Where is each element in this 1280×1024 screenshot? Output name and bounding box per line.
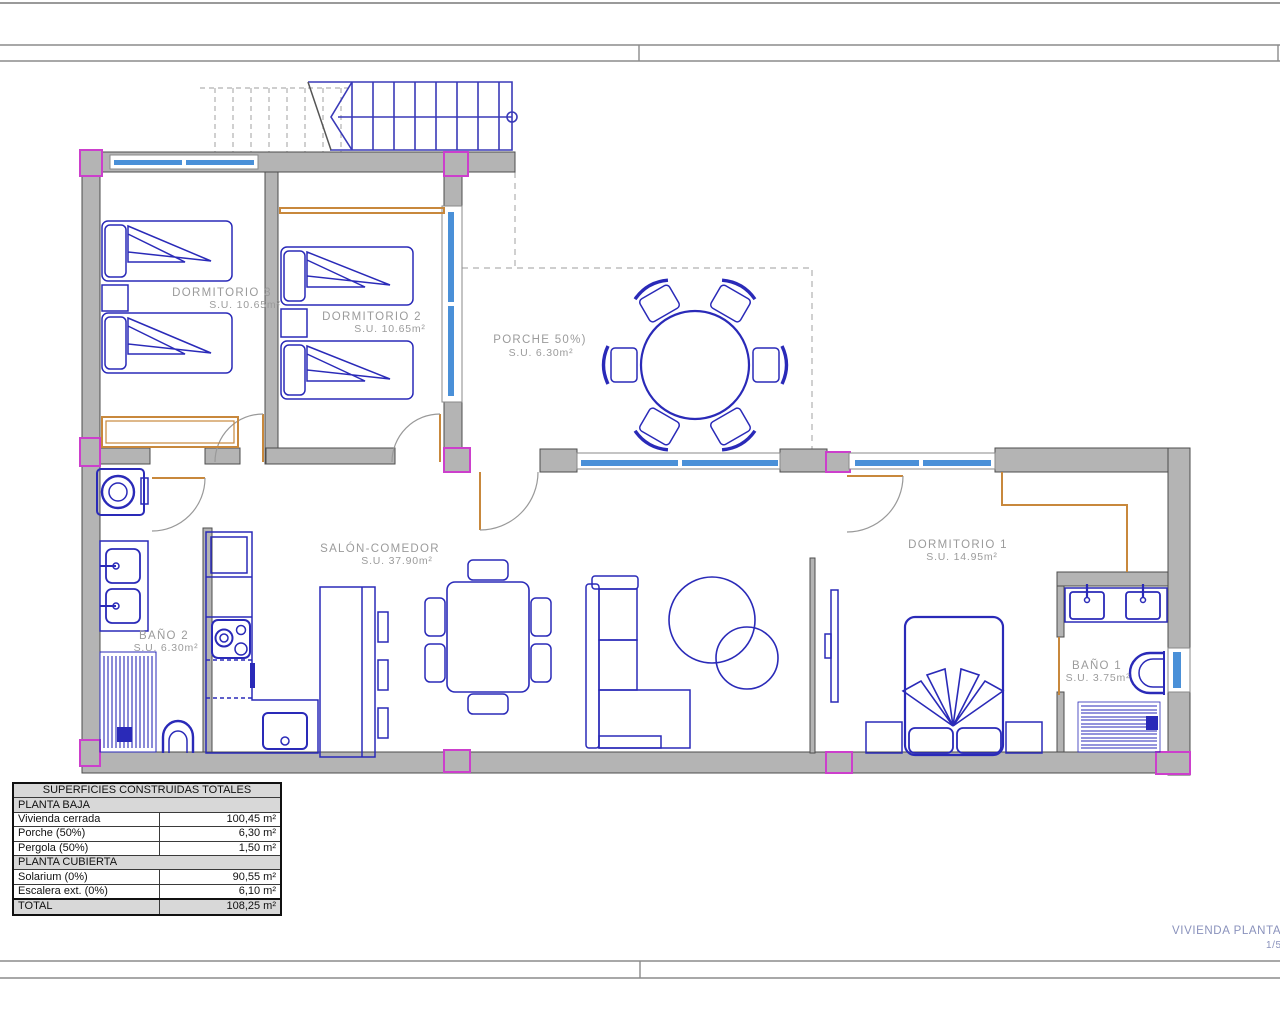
- chair: [425, 598, 445, 636]
- round-pouf: [716, 627, 778, 689]
- room-area-dormitorio2: S.U. 10.65m²: [354, 323, 425, 335]
- kitchen-sink: [263, 713, 307, 749]
- bano2-fixtures: [97, 469, 193, 753]
- room-label-bano2: BAÑO 2: [139, 629, 189, 642]
- window-salon: [577, 453, 780, 469]
- pillow: [105, 317, 126, 369]
- planta-baja-header: PLANTA BAJA: [13, 798, 281, 812]
- round-table: [641, 311, 749, 419]
- room-label-dormitorio1: DORMITORIO 1: [908, 539, 1008, 551]
- row-label: Porche (50%): [13, 827, 159, 841]
- tv-unit: [831, 590, 838, 702]
- room-area-bano2: S.U. 6.30m²: [134, 642, 199, 654]
- table-title: SUPERFICIES CONSTRUIDAS TOTALES: [13, 783, 281, 798]
- pillow: [284, 345, 305, 395]
- bed: [281, 341, 413, 399]
- total-row: TOTAL 108,25 m²: [13, 899, 281, 914]
- areas-table: SUPERFICIES CONSTRUIDAS TOTALES PLANTA B…: [12, 782, 282, 916]
- row-value: 100,45 m²: [159, 812, 281, 826]
- porch-dining-set: [604, 276, 787, 453]
- room-label-dormitorio3: DORMITORIO 3: [172, 287, 272, 299]
- bed: [102, 313, 232, 373]
- dormitorio1-furniture: [866, 617, 1042, 755]
- chair: [468, 694, 508, 714]
- nightstand: [1006, 722, 1042, 753]
- bed: [281, 247, 413, 305]
- total-value: 108,25 m²: [159, 899, 281, 914]
- total-label: TOTAL: [13, 899, 159, 914]
- row-label: Solarium (0%): [13, 870, 159, 884]
- pillow: [909, 728, 953, 753]
- room-label-salon: SALÓN-COMEDOR: [320, 542, 440, 555]
- row-value: 90,55 m²: [159, 870, 281, 884]
- chair: [425, 644, 445, 682]
- pillow: [284, 251, 305, 301]
- kitchen-island: [320, 587, 375, 757]
- room-area-salon: S.U. 37.90m²: [361, 555, 432, 567]
- nightstand: [866, 722, 902, 753]
- chair: [753, 346, 787, 384]
- salon-furniture: [425, 560, 838, 748]
- table-row: Solarium (0%) 90,55 m²: [13, 870, 281, 884]
- table-row: Pergola (50%) 1,50 m²: [13, 841, 281, 855]
- bed: [102, 221, 232, 281]
- porch-boundary-dashed: [462, 172, 812, 450]
- room-area-bano1: S.U. 3.75m²: [1066, 672, 1131, 684]
- room-label-bano1: BAÑO 1: [1072, 659, 1122, 672]
- floor-plan-sheet: { "sheet": { "title": "VIVIENDA PLANTA B…: [0, 0, 1280, 1024]
- chair: [708, 276, 758, 324]
- room-area-dormitorio1: S.U. 14.95m²: [926, 551, 997, 563]
- chair: [633, 276, 683, 324]
- stool: [378, 612, 388, 642]
- round-pouf: [669, 577, 755, 663]
- stair-break-line: [308, 82, 331, 150]
- room-label-dormitorio2: DORMITORIO 2: [322, 311, 422, 323]
- section-header-row: PLANTA CUBIERTA: [13, 855, 281, 869]
- chair: [633, 406, 683, 454]
- toilet: [163, 721, 193, 753]
- shower-drain: [117, 727, 132, 742]
- planta-cubierta-header: PLANTA CUBIERTA: [13, 855, 281, 869]
- window-dormitorio3: [110, 155, 258, 169]
- chair: [531, 598, 551, 636]
- sheet-number: 1/5: [1266, 940, 1280, 951]
- staircase: [200, 82, 517, 152]
- table-row: Porche (50%) 6,30 m²: [13, 827, 281, 841]
- sheet-title-block: VIVIENDA PLANTA BA 1/5: [1172, 925, 1280, 951]
- window-dormitorio2: [442, 206, 462, 402]
- table-row: Vivienda cerrada 100,45 m²: [13, 812, 281, 826]
- room-labels: DORMITORIO 3 S.U. 10.65m² DORMITORIO 2 S…: [134, 287, 1131, 684]
- section-header-row: PLANTA BAJA: [13, 798, 281, 812]
- sheet-title: VIVIENDA PLANTA BA: [1172, 925, 1280, 937]
- stool: [378, 660, 388, 690]
- row-value: 6,30 m²: [159, 827, 281, 841]
- chair: [468, 560, 508, 580]
- wardrobes: [102, 208, 1127, 572]
- nightstand: [281, 309, 307, 337]
- row-value: 6,10 m²: [159, 884, 281, 899]
- chair: [604, 346, 638, 384]
- room-area-dormitorio3: S.U. 10.65m²: [209, 299, 280, 311]
- row-label: Pergola (50%): [13, 841, 159, 855]
- double-bed: [905, 617, 1003, 755]
- chair: [531, 644, 551, 682]
- row-label: Escalera ext. (0%): [13, 884, 159, 899]
- dining-table: [447, 582, 529, 692]
- row-value: 1,50 m²: [159, 841, 281, 855]
- table-title-row: SUPERFICIES CONSTRUIDAS TOTALES: [13, 783, 281, 798]
- pillow: [105, 225, 126, 277]
- window-dormitorio1: [849, 453, 995, 469]
- stool: [378, 708, 388, 738]
- row-label: Vivienda cerrada: [13, 812, 159, 826]
- sofa: [586, 576, 690, 748]
- shower-drain: [1146, 716, 1158, 730]
- vanity-counter: [1065, 588, 1167, 622]
- window-bano1: [1168, 648, 1190, 692]
- stove: [212, 620, 250, 658]
- nightstand: [102, 285, 128, 311]
- closet-dormitorio1: [1002, 472, 1127, 572]
- table-row: Escalera ext. (0%) 6,10 m²: [13, 884, 281, 899]
- wardrobe-dormitorio2: [280, 208, 444, 213]
- pillow: [957, 728, 1001, 753]
- room-area-porche: S.U. 6.30m²: [509, 347, 574, 359]
- chair: [708, 406, 758, 454]
- room-label-porche: PORCHE 50%): [493, 334, 587, 346]
